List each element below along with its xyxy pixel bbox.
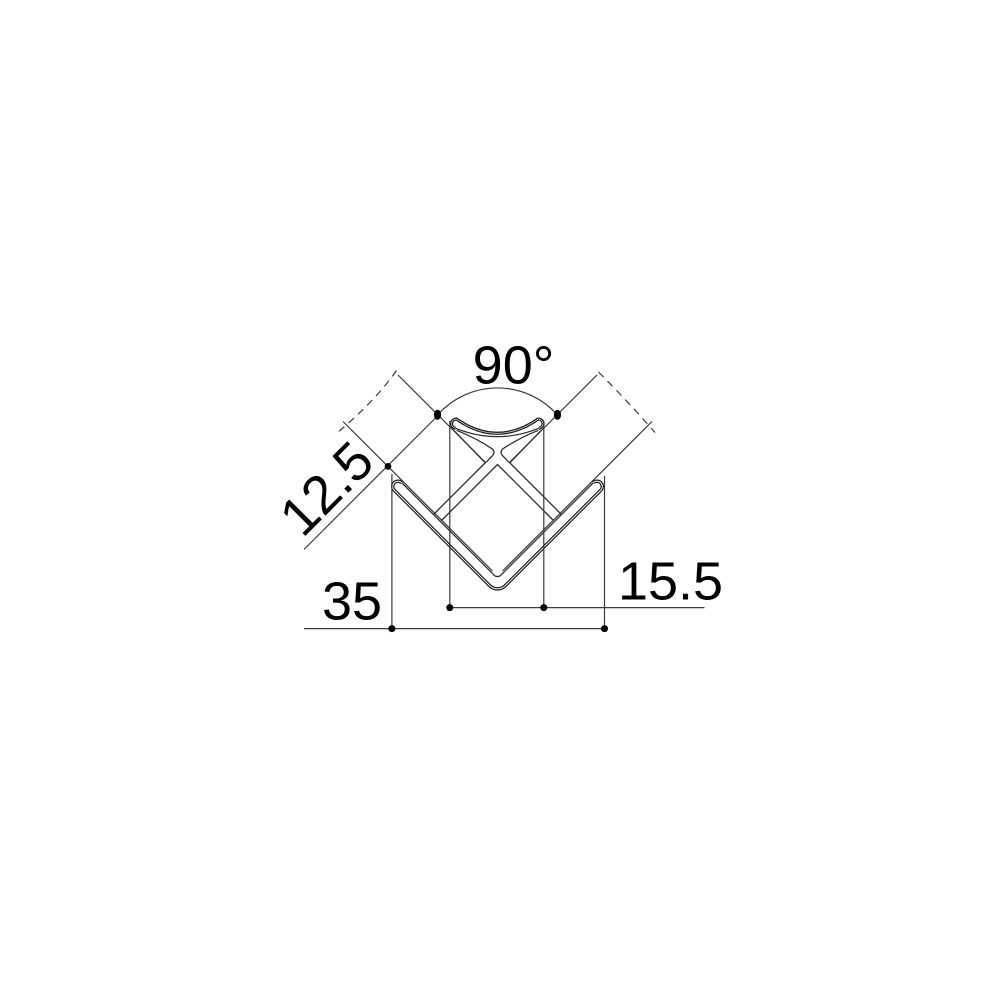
svg-text:15.5: 15.5 xyxy=(618,552,723,612)
svg-text:90°: 90° xyxy=(473,336,555,396)
svg-text:35: 35 xyxy=(322,572,382,632)
